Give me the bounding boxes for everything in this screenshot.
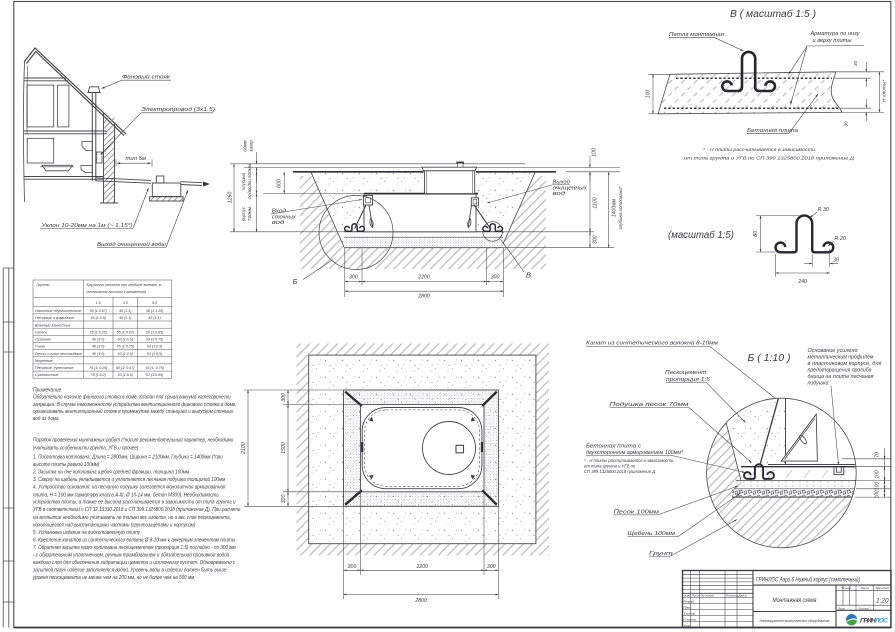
svg-text:Моренные: Моренные — [35, 359, 53, 363]
svg-text:30: 30 — [833, 258, 839, 264]
svg-text:100: 100 — [875, 482, 881, 491]
svg-text:уровня пескоцемента не менее ч: уровня пескоцемента не менее чем на 200 … — [32, 575, 195, 581]
svg-text:2200: 2200 — [417, 274, 430, 280]
svg-text:от типа грунта и УГВ по СП 399: от типа грунта и УГВ по СП 399 1325800.2… — [684, 156, 855, 162]
svg-text:56 (1:0.67): 56 (1:0.67) — [117, 330, 134, 334]
svg-text:80: 80 — [753, 231, 759, 237]
svg-text:в пластиковом корпусе, для: в пластиковом корпусе, для — [808, 361, 882, 367]
svg-text:ГРИНЛОС Аэро 6 Нижний корпус: ГРИНЛОС Аэро 6 Нижний корпус (самотечный… — [756, 577, 860, 584]
svg-text:двухсторонним армированием 100: двухсторонним армированием 100мм* — [586, 450, 684, 456]
svg-text:2800: 2800 — [414, 598, 427, 604]
svg-text:100: 100 — [646, 90, 652, 99]
svg-text:Масштаб: Масштаб — [876, 586, 889, 590]
svg-text:Разраб.: Разраб. — [684, 600, 695, 604]
svg-text:Грунт: Грунт — [649, 551, 674, 557]
svg-text:на всплытие необходимо учитыв: на всплытие необходимо учитывать не толь… — [33, 515, 231, 521]
svg-text:60 (1: 0.57): 60 (1: 0.57) — [116, 366, 134, 370]
svg-text:глубина котлована*: глубина котлована* — [618, 186, 623, 229]
svg-text:ГРИНЛОС: ГРИНЛОС — [860, 617, 888, 624]
svg-text:* - Н плиты рассчитывается в з: * - Н плиты рассчитывается в зависимости — [703, 147, 815, 153]
svg-text:Изм. Лист: Изм. Лист — [684, 594, 700, 598]
svg-text:57 (1:0.65): 57 (1:0.65) — [146, 373, 163, 377]
svg-text:Лист: Лист — [837, 606, 846, 610]
svg-text:Листов 1: Листов 1 — [857, 606, 871, 610]
svg-text:1500: 1500 — [281, 442, 287, 454]
svg-text:каждого слоя для обеспечения г: каждого слоя для обеспечения гидратации … — [33, 560, 236, 566]
svg-text:Электропровод (3х1.5): Электропровод (3х1.5) — [141, 107, 215, 113]
svg-text:Монтажная схема: Монтажная схема — [773, 597, 817, 604]
svg-text:Основание усилено: Основание усилено — [808, 348, 858, 354]
svg-text:6. Крепление канатов из синтет: 6. Крепление канатов из синтетического в… — [33, 537, 235, 543]
svg-text:металлическим профилем: металлическим профилем — [808, 354, 875, 360]
svg-text:подушка: подушка — [808, 380, 829, 386]
svg-text:Суглинок: Суглинок — [35, 338, 51, 342]
svg-text:2200: 2200 — [416, 564, 429, 570]
svg-text:1. Подготовка котлована: Длина: 1. Подготовка котлована: Длина = 2800мм,… — [33, 454, 223, 460]
svg-text:Б: Б — [293, 277, 298, 286]
svg-text:70: 70 — [875, 452, 881, 458]
svg-text:38 (1:1.25): 38 (1:1.25) — [146, 309, 163, 313]
svg-text:78 (1:0.2): 78 (1:0.2) — [91, 373, 106, 377]
svg-text:днища на плите песчаная: днища на плите песчаная — [808, 374, 874, 380]
svg-text:Примечание: Примечание — [33, 387, 61, 393]
svg-text:Крутизна откосов при глубине в: Крутизна откосов при глубине выемки, м — [87, 283, 163, 287]
svg-text:В ( масштаб 1:5 ): В ( масштаб 1:5 ) — [730, 8, 816, 20]
svg-text:(отношение высоты к заложению): (отношение высоты к заложению) — [87, 290, 147, 294]
svg-text:Насыпные неуплотненные: Насыпные неуплотненные — [35, 309, 81, 313]
svg-text:53 (1: 0.75): 53 (1: 0.75) — [145, 366, 163, 370]
svg-text:300: 300 — [491, 274, 500, 280]
svg-text:Уклон 10-20мм на 1м (~ 1.15°): Уклон 10-20мм на 1м (~ 1.15°) — [40, 223, 132, 229]
svg-text:глубина: глубина — [241, 172, 246, 190]
svg-text:Супесь: Супесь — [35, 330, 47, 334]
svg-text:1260: 1260 — [228, 192, 234, 204]
svg-text:63 (1:0.5): 63 (1:0.5) — [91, 316, 106, 320]
svg-text:Подушка песок 70мм: Подушка песок 70мм — [610, 402, 689, 408]
svg-text:зазор: зазор — [249, 140, 254, 153]
svg-text:1400мм: 1400мм — [612, 198, 618, 217]
svg-text:300: 300 — [281, 393, 287, 402]
svg-text:Грунты: Грунты — [37, 283, 50, 287]
svg-text:плита, Н = 100 мм (арматура кл: плита, Н = 100 мм (арматура класса А-III… — [33, 492, 219, 498]
svg-text:Лессы и сухие лессовидные: Лессы и сухие лессовидные — [34, 352, 82, 356]
svg-text:45 (1:1): 45 (1:1) — [148, 316, 160, 320]
svg-text:700мм: 700мм — [247, 206, 252, 221]
svg-text:учитывать особенности грунта,: учитывать особенности грунта, УГВ и проч… — [32, 445, 139, 451]
svg-text:вод: вод — [272, 220, 285, 226]
svg-text:Б ( 1:10 ): Б ( 1:10 ) — [748, 353, 791, 364]
svg-text:В: В — [526, 271, 531, 280]
svg-text:53 (1:0.75): 53 (1:0.75) — [146, 338, 163, 342]
svg-text:Н плиты*: Н плиты* — [882, 80, 888, 102]
svg-text:Обязательно наличие фанового с: Обязательно наличие фанового стояка в до… — [33, 394, 231, 400]
svg-text:Т.контр.: Т.контр. — [684, 612, 697, 616]
svg-text:45 (1:1): 45 (1:1) — [119, 309, 131, 313]
svg-text:56 (1:0.67): 56 (1:0.67) — [90, 309, 107, 313]
svg-text:и верху плиты: и верху плиты — [813, 38, 852, 44]
svg-text:63 (1:0.5): 63 (1:0.5) — [118, 338, 133, 342]
svg-text:Инновационное экологическое об: Инновационное экологическое оборудование — [760, 619, 830, 623]
svg-text:90 (1:0): 90 (1:0) — [92, 338, 104, 342]
svg-text:2800: 2800 — [417, 293, 430, 299]
svg-text:Глина: Глина — [35, 345, 45, 349]
svg-text:Масса: Масса — [861, 586, 870, 590]
svg-text:* - Н плиты рассчитывается в з: * - Н плиты рассчитывается в зависимости — [584, 458, 674, 463]
svg-text:Влажные глинистые: Влажные глинистые — [35, 323, 71, 327]
svg-text:300: 300 — [487, 564, 496, 570]
svg-text:Фановый стояк: Фановый стояк — [122, 74, 170, 81]
svg-text:Н.контр.: Н.контр. — [684, 618, 697, 622]
svg-text:90 (1:0): 90 (1:0) — [92, 352, 104, 356]
svg-text:5. Установка изделия на подгот: 5. Установка изделия на подготовленную п… — [33, 530, 140, 536]
svg-text:300: 300 — [349, 274, 358, 280]
svg-text:90 (1:0): 90 (1:0) — [92, 345, 104, 349]
svg-text:76 (1:0.25): 76 (1:0.25) — [117, 345, 134, 349]
svg-text:вод из дома: вод из дома — [33, 416, 59, 422]
svg-text:Песчаные и гравийные: Песчаные и гравийные — [35, 316, 74, 320]
svg-text:300: 300 — [281, 495, 287, 504]
svg-text:№ докум.: № докум. — [701, 594, 715, 598]
svg-text:Бетонная плита с: Бетонная плита с — [586, 443, 641, 449]
svg-text:63 (1:0.5): 63 (1:0.5) — [147, 352, 162, 356]
svg-text:300: 300 — [348, 564, 357, 570]
svg-text:100: 100 — [592, 148, 598, 157]
svg-text:Выход очищенной воды: Выход очищенной воды — [97, 241, 166, 248]
svg-text:240: 240 — [797, 279, 807, 285]
svg-text:30: 30 — [844, 121, 850, 127]
svg-text:76 (1: 0.25): 76 (1: 0.25) — [89, 366, 107, 370]
svg-text:Литера: Литера — [840, 586, 852, 590]
svg-text:100: 100 — [875, 470, 881, 479]
svg-text:вод: вод — [553, 191, 566, 197]
svg-text:300: 300 — [593, 235, 599, 244]
svg-text:Арматура по низу: Арматура по низу — [809, 31, 860, 37]
svg-text:предотвращения прогиба: предотвращения прогиба — [808, 367, 872, 373]
svg-text:пропорция 1:5: пропорция 1:5 — [666, 377, 711, 383]
svg-text:63 (1:0.5): 63 (1:0.5) — [118, 373, 133, 377]
svg-text:Канат из синтетического волокн: Канат из синтетического волокна 8-10мм — [586, 341, 718, 347]
svg-text:подводки 500мм: подводки 500мм — [247, 163, 252, 199]
svg-text:63 (1:0.5): 63 (1:0.5) — [147, 345, 162, 349]
svg-text:1:20: 1:20 — [876, 597, 889, 604]
svg-text:находящегося над выступающими: находящегося над выступающими частями (г… — [33, 522, 196, 528]
svg-text:600: 600 — [277, 179, 283, 188]
svg-text:5.0: 5.0 — [152, 301, 157, 305]
svg-text:от типа грунта и УГВ по: от типа грунта и УГВ по — [584, 463, 636, 468]
svg-text:Песок 100мм: Песок 100мм — [614, 510, 660, 516]
svg-text:2100: 2100 — [241, 442, 247, 455]
svg-text:50 (1:0.85): 50 (1:0.85) — [146, 330, 163, 334]
svg-text:60мм: 60мм — [243, 139, 248, 151]
svg-text:63 (1:0.5): 63 (1:0.5) — [118, 352, 133, 356]
svg-text:R 30: R 30 — [818, 207, 829, 213]
svg-text:Пескоцемент: Пескоцемент — [665, 370, 707, 376]
svg-text:100: 100 — [875, 490, 881, 499]
svg-text:45 (1:1): 45 (1:1) — [119, 316, 131, 320]
svg-text:76 (1:0.25): 76 (1:0.25) — [90, 330, 107, 334]
svg-text:Пров.: Пров. — [684, 606, 692, 610]
svg-text:1100: 1100 — [593, 197, 599, 208]
svg-text:УГВ в соответствии с СП 32.133: УГВ в соответствии с СП 32.13330.2018 и … — [33, 507, 241, 513]
svg-text:Подпись: Подпись — [726, 594, 739, 598]
svg-text:Суглинистые: Суглинистые — [35, 373, 59, 377]
svg-text:СП 399 1325800.2018 приложение: СП 399 1325800.2018 приложение Д — [584, 469, 655, 474]
svg-text:3.0: 3.0 — [123, 301, 128, 305]
svg-text:(масштаб 1:5): (масштаб 1:5) — [668, 229, 734, 241]
svg-text:1.5: 1.5 — [96, 301, 101, 305]
svg-text:Щебень 100мм: Щебень 100мм — [628, 531, 676, 537]
svg-text:Дата: Дата — [738, 594, 747, 598]
svg-text:R 20: R 20 — [835, 236, 846, 242]
svg-text:Песчаные, супесчаные: Песчаные, супесчаные — [35, 366, 73, 370]
svg-text:корпус: корпус — [241, 206, 246, 221]
svg-text:30: 30 — [853, 61, 859, 67]
svg-text:тип 5м: тип 5м — [126, 156, 147, 162]
